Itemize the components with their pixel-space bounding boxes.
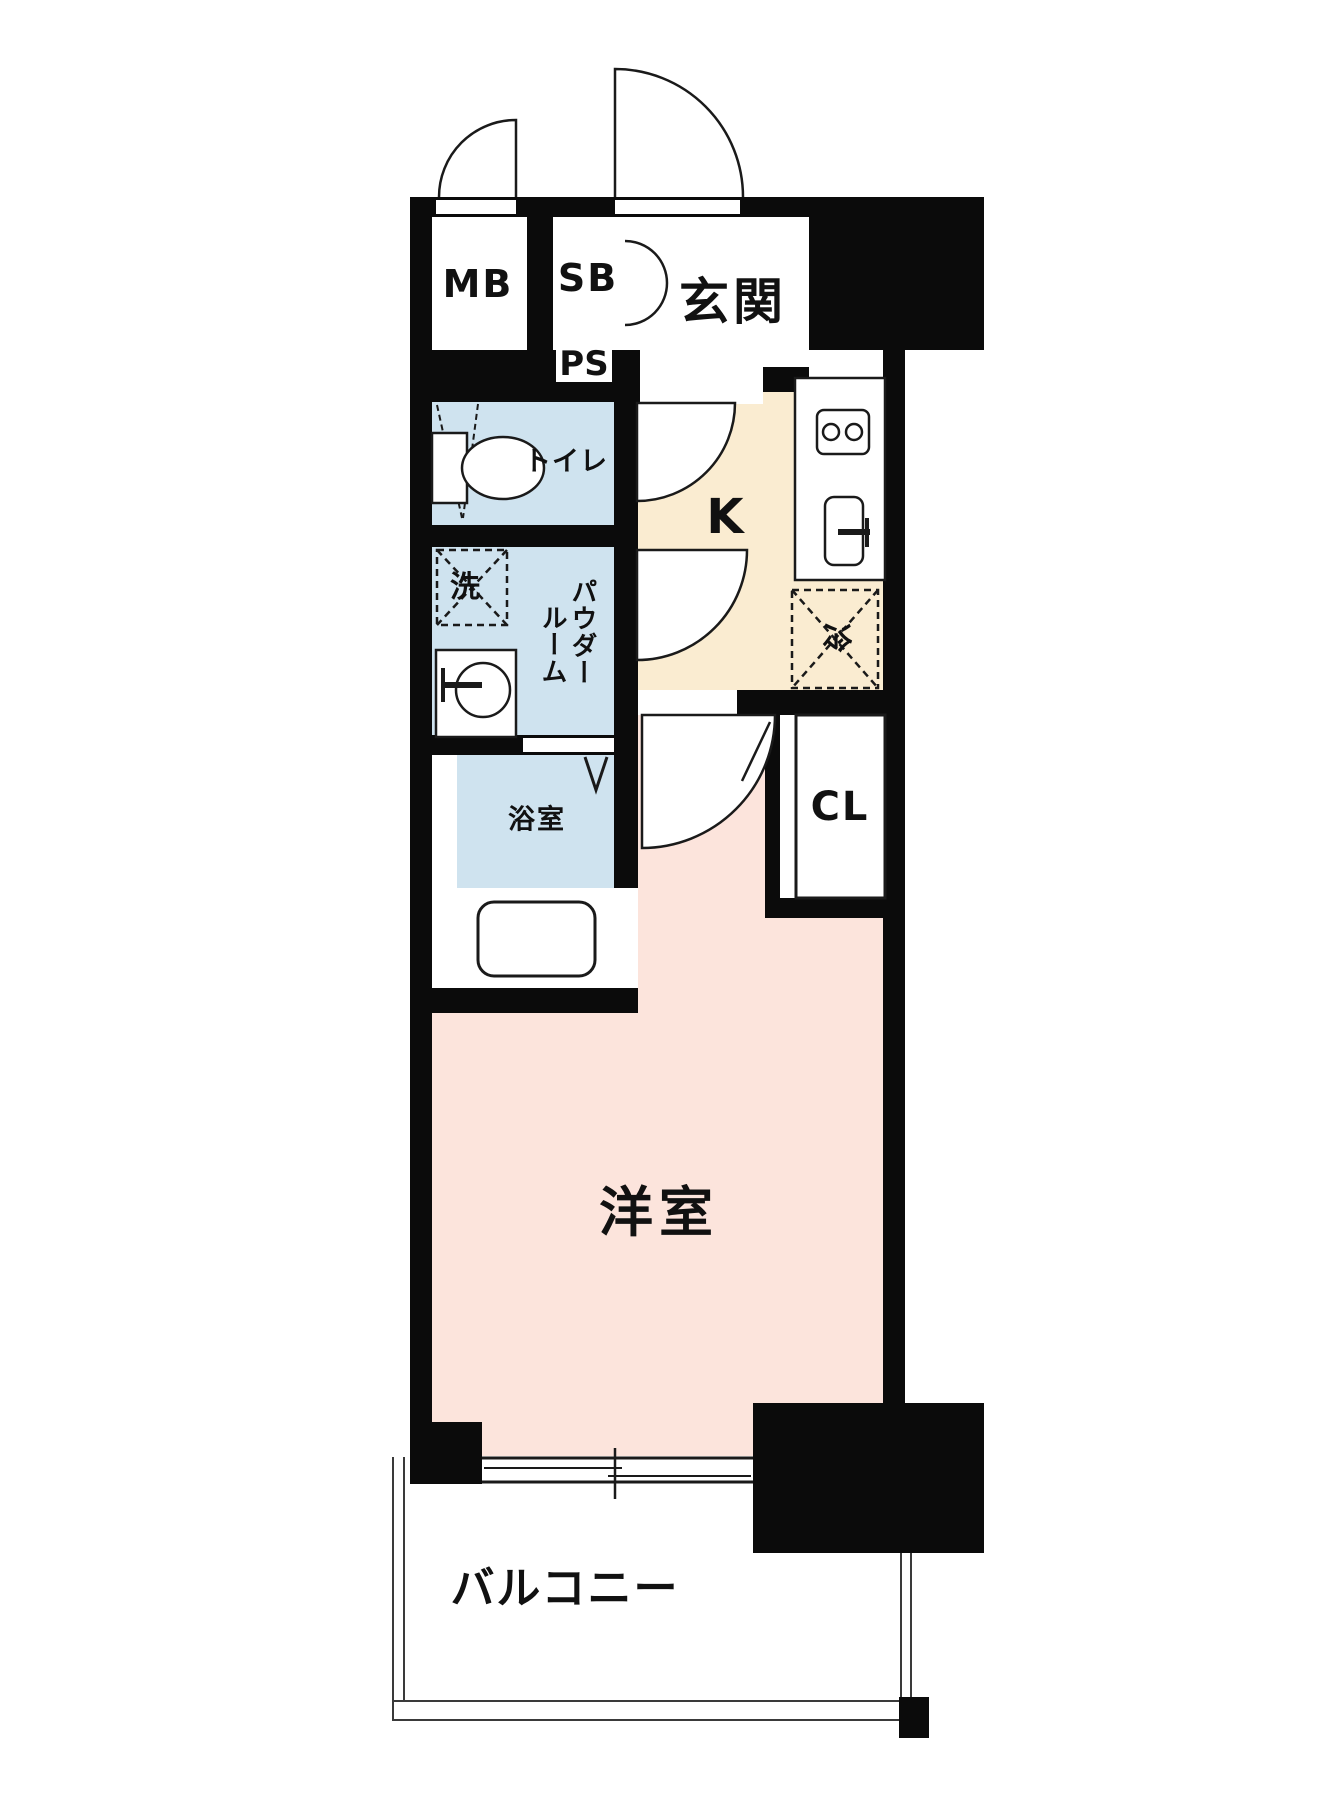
stove-burner-left-icon xyxy=(823,424,839,440)
wall-kitchen-bottom xyxy=(737,690,905,715)
wall-bottom-left-block xyxy=(410,1422,482,1484)
label-powder-room: パウダー ルーム xyxy=(536,578,596,686)
floor-plan: MB SB 玄関 PS トイレ K 洗 パウダー ルーム 冷 浴室 CL 洋室 … xyxy=(0,0,1320,1800)
label-shoe-box: SB xyxy=(558,259,618,297)
label-toilet: トイレ xyxy=(524,449,608,476)
entrance-door-swing xyxy=(615,69,743,197)
label-kitchen: K xyxy=(706,493,745,541)
bathtub-icon xyxy=(478,902,595,976)
entrance-door-threshold xyxy=(615,200,740,214)
wall-mass-top-right xyxy=(809,197,984,350)
label-bathroom: 浴室 xyxy=(508,807,566,834)
window-band xyxy=(482,1459,753,1481)
stove-burner-right-icon xyxy=(846,424,862,440)
wall-mass-bottom-right xyxy=(753,1403,984,1553)
label-entrance: 玄関 xyxy=(679,277,787,327)
label-powder-room-line2: ルーム xyxy=(536,604,566,686)
western-room-fill-mid xyxy=(638,918,883,1013)
wall-toilet-powder xyxy=(412,525,637,547)
mb-door-threshold xyxy=(436,200,516,214)
label-western-room: 洋室 xyxy=(599,1186,719,1240)
wall-mb-right xyxy=(527,217,553,350)
label-closet: CL xyxy=(811,787,870,827)
label-powder-room-line1: パウダー xyxy=(566,578,596,686)
entrance-passage xyxy=(640,367,763,404)
label-washer: 洗 xyxy=(450,573,482,603)
wall-toilet-kitchen xyxy=(614,380,638,888)
vanity-sink-icon xyxy=(456,663,510,717)
bath-door-threshold xyxy=(523,738,614,752)
mb-door-swing xyxy=(439,120,516,197)
closet-door-track xyxy=(780,715,796,898)
label-balcony: バルコニー xyxy=(450,1567,679,1611)
room-doorway xyxy=(637,690,737,715)
label-meter-box: MB xyxy=(443,265,514,303)
balcony-railing-post xyxy=(899,1697,929,1738)
label-pipe-space: PS xyxy=(559,347,608,381)
floor-plan-drawing xyxy=(0,0,1320,1800)
label-fridge: 冷 xyxy=(820,623,850,655)
wall-bath-bottom xyxy=(410,988,638,1013)
